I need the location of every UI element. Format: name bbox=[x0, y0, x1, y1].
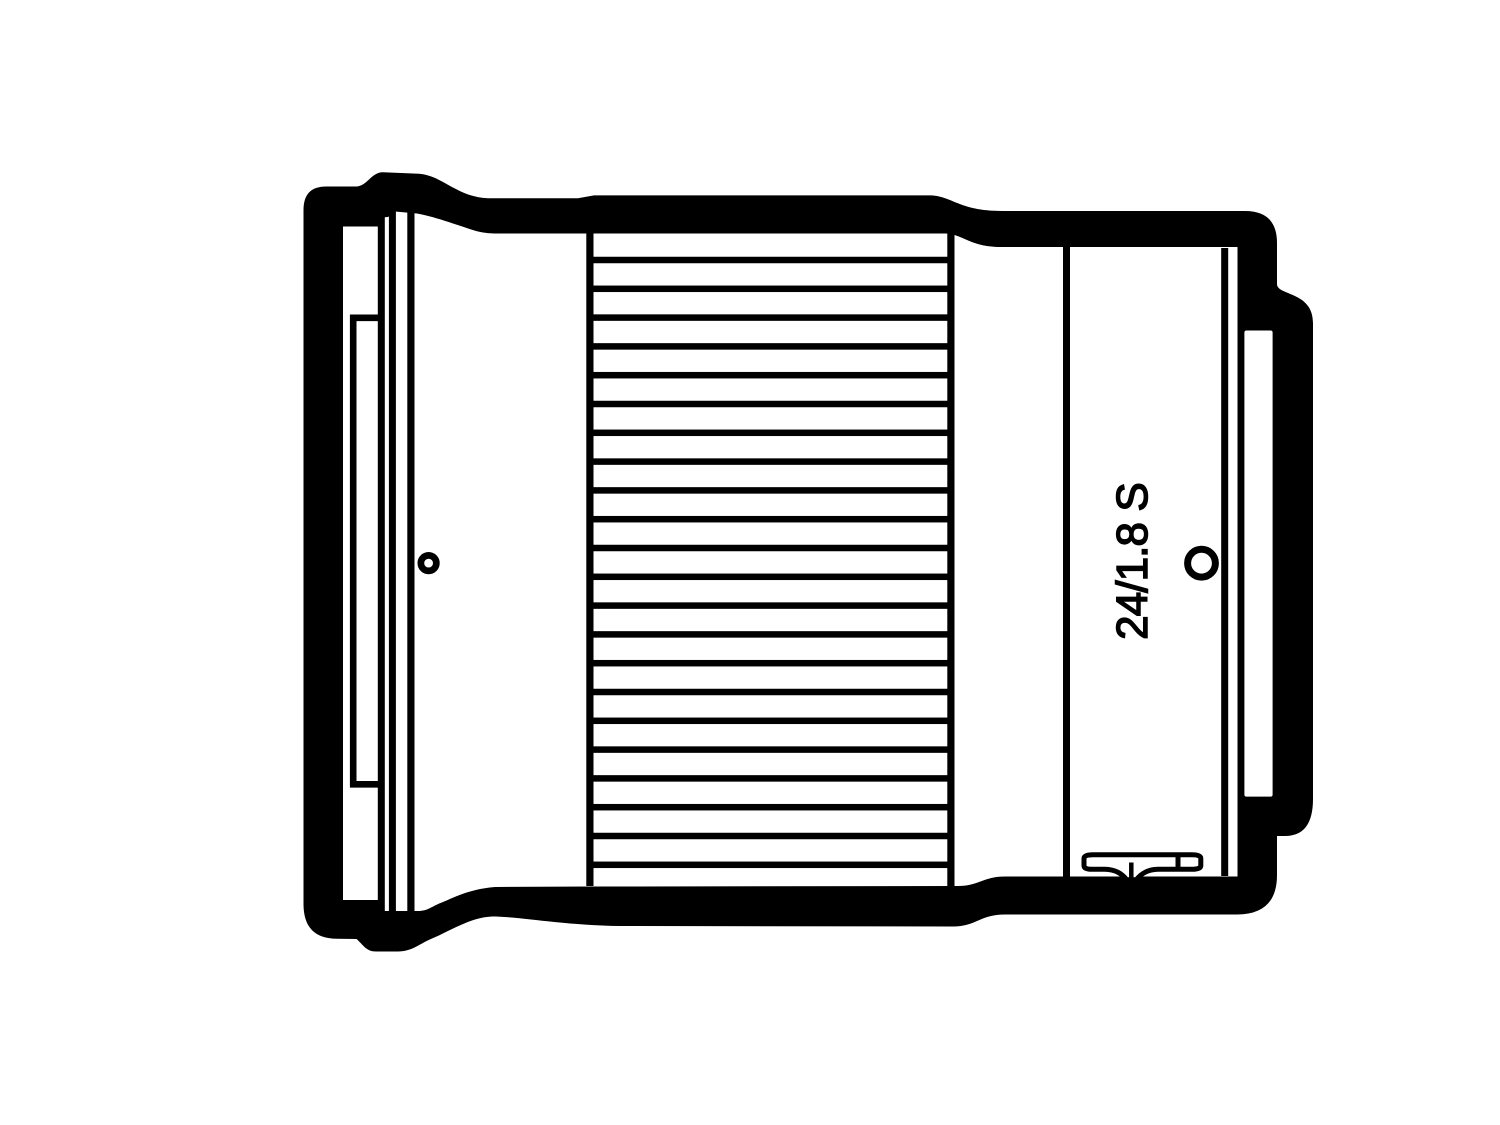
svg-text:24/1.8 S: 24/1.8 S bbox=[1108, 483, 1157, 640]
